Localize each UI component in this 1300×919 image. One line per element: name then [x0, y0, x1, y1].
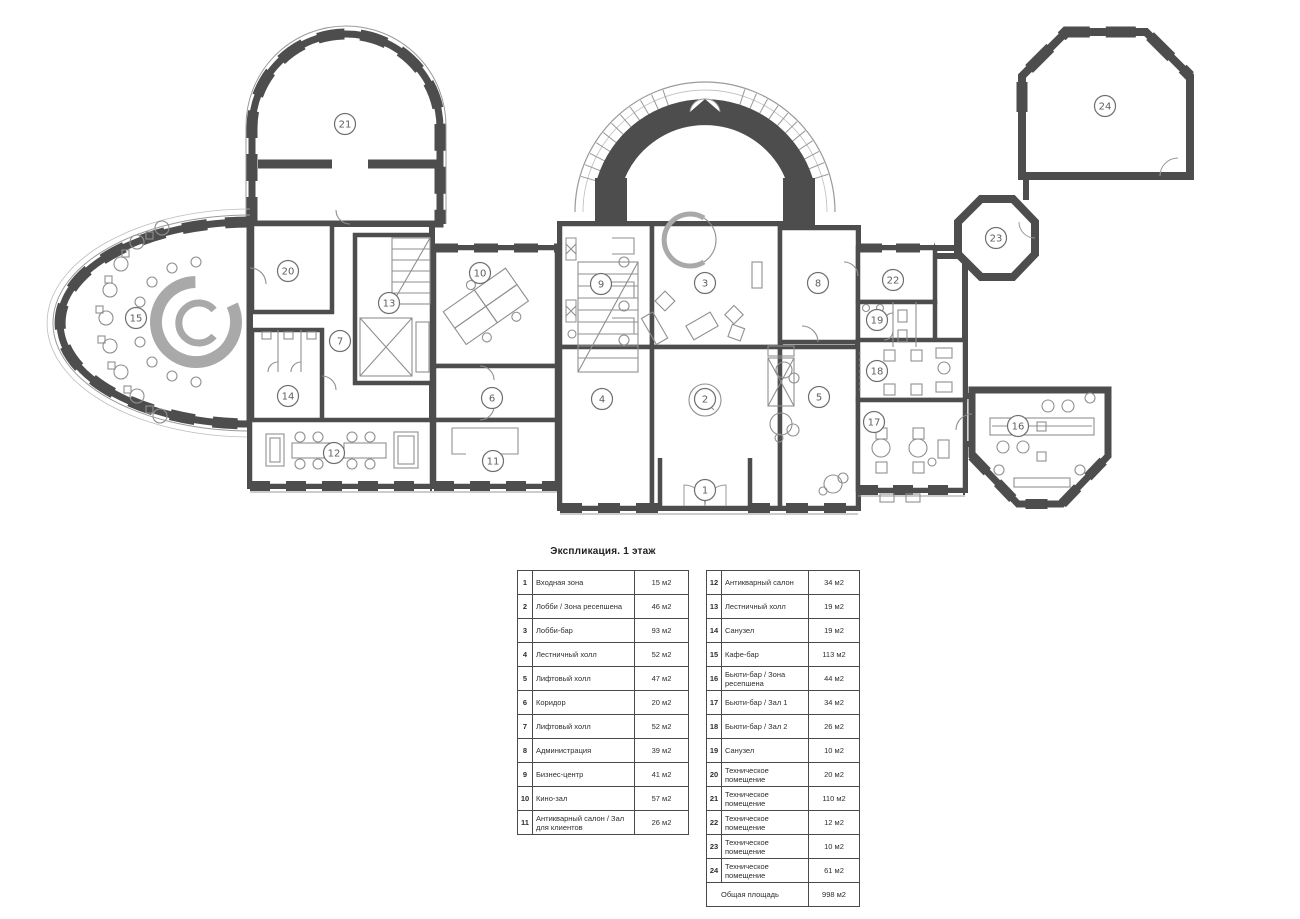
legend-cell-num: 5: [518, 667, 533, 691]
room-marker-number: 1: [702, 485, 708, 496]
legend-cell-num: 7: [518, 715, 533, 739]
legend-cell-num: 2: [518, 595, 533, 619]
legend-cell-num: 16: [707, 667, 722, 691]
legend-cell-area: 26 м2: [809, 715, 860, 739]
legend-cell-name: Санузел: [722, 619, 809, 643]
room-marker-number: 24: [1099, 101, 1112, 112]
legend-row: 3Лобби-бар93 м2: [518, 619, 689, 643]
legend-cell-num: 8: [518, 739, 533, 763]
floor-plan-drawing: 123456789101112131415161718192021222324: [0, 0, 1300, 545]
legend-cell-name: Лифтовый холл: [533, 667, 635, 691]
legend-cell-area: 110 м2: [809, 787, 860, 811]
room-marker-number: 23: [990, 233, 1003, 244]
legend-row: 21Техническое помещение110 м2: [707, 787, 860, 811]
room-marker-number: 2: [702, 394, 708, 405]
room-marker-number: 21: [339, 119, 352, 130]
legend-table-right-body: 12Антикварный салон34 м213Лестничный хол…: [707, 571, 860, 907]
legend-cell-area: 20 м2: [635, 691, 689, 715]
room-marker-number: 12: [328, 448, 341, 459]
room-marker-number: 19: [871, 315, 884, 326]
legend-cell-area: 47 м2: [635, 667, 689, 691]
legend-cell-area: 10 м2: [809, 835, 860, 859]
room-marker-number: 17: [868, 417, 881, 428]
legend-row: 5Лифтовый холл47 м2: [518, 667, 689, 691]
legend-cell-name: Лобби-бар: [533, 619, 635, 643]
room-marker-number: 10: [474, 268, 487, 279]
room-marker-number: 6: [489, 393, 495, 404]
room-marker-number: 16: [1012, 421, 1025, 432]
legend-cell-num: 22: [707, 811, 722, 835]
legend-cell-name: Лестничный холл: [722, 595, 809, 619]
legend-cell-num: 24: [707, 859, 722, 883]
legend-cell-name: Техническое помещение: [722, 835, 809, 859]
legend-row: 14Санузел19 м2: [707, 619, 860, 643]
legend-cell-name: Кино-зал: [533, 787, 635, 811]
legend-cell-area: 19 м2: [809, 595, 860, 619]
room-marker-number: 7: [337, 336, 343, 347]
room-marker-number: 20: [282, 266, 295, 277]
legend-cell-num: 19: [707, 739, 722, 763]
legend-row: 2Лобби / Зона ресепшена46 м2: [518, 595, 689, 619]
legend-cell-name: Антикварный салон: [722, 571, 809, 595]
legend-cell-num: 4: [518, 643, 533, 667]
legend-cell-area: 113 м2: [809, 643, 860, 667]
floor-plan-sheet: 123456789101112131415161718192021222324 …: [0, 0, 1300, 919]
legend-row: 17Бьюти-бар / Зал 134 м2: [707, 691, 860, 715]
legend-row: 1Входная зона15 м2: [518, 571, 689, 595]
legend-row: 23Техническое помещение10 м2: [707, 835, 860, 859]
legend-cell-area: 34 м2: [809, 691, 860, 715]
legend-total-label: Общая площадь: [707, 883, 809, 907]
legend-cell-area: 52 м2: [635, 715, 689, 739]
legend-row: 10Кино-зал57 м2: [518, 787, 689, 811]
legend-row: 12Антикварный салон34 м2: [707, 571, 860, 595]
annex-rooms: [935, 32, 1190, 504]
legend-cell-num: 10: [518, 787, 533, 811]
legend-cell-name: Антикварный салон / Зал для клиентов: [533, 811, 635, 835]
room-marker-number: 9: [598, 279, 604, 290]
room-marker-number: 4: [599, 394, 605, 405]
legend-cell-name: Лестничный холл: [533, 643, 635, 667]
legend-cell-area: 39 м2: [635, 739, 689, 763]
legend-cell-num: 9: [518, 763, 533, 787]
legend-cell-area: 46 м2: [635, 595, 689, 619]
legend-cell-area: 44 м2: [809, 667, 860, 691]
legend-cell-num: 17: [707, 691, 722, 715]
legend-row: 13Лестничный холл19 м2: [707, 595, 860, 619]
legend-cell-area: 15 м2: [635, 571, 689, 595]
room-marker-number: 5: [816, 392, 822, 403]
legend-cell-area: 52 м2: [635, 643, 689, 667]
legend-row: 19Санузел10 м2: [707, 739, 860, 763]
room-marker-number: 8: [815, 278, 821, 289]
legend-row: 4Лестничный холл52 м2: [518, 643, 689, 667]
legend-cell-area: 34 м2: [809, 571, 860, 595]
room-marker-number: 22: [887, 275, 900, 286]
legend-cell-name: Бьюти-бар / Зона ресепшена: [722, 667, 809, 691]
legend-cell-name: Техническое помещение: [722, 763, 809, 787]
room-marker-number: 3: [702, 278, 708, 289]
legend-cell-area: 12 м2: [809, 811, 860, 835]
room-marker-number: 18: [871, 366, 884, 377]
legend-table-right: 12Антикварный салон34 м213Лестничный хол…: [706, 570, 860, 907]
legend-row: 15Кафе-бар113 м2: [707, 643, 860, 667]
legend-cell-name: Лифтовый холл: [533, 715, 635, 739]
legend-cell-name: Лобби / Зона ресепшена: [533, 595, 635, 619]
legend-cell-num: 14: [707, 619, 722, 643]
legend-cell-num: 13: [707, 595, 722, 619]
legend-cell-name: Бизнес-центр: [533, 763, 635, 787]
legend-cell-num: 15: [707, 643, 722, 667]
legend-cell-num: 1: [518, 571, 533, 595]
room-marker-number: 11: [487, 456, 500, 467]
legend-row: 8Администрация39 м2: [518, 739, 689, 763]
legend-cell-name: Техническое помещение: [722, 787, 809, 811]
legend-table-left: 1Входная зона15 м22Лобби / Зона ресепшен…: [517, 570, 689, 835]
legend-row: 16Бьюти-бар / Зона ресепшена44 м2: [707, 667, 860, 691]
legend-cell-name: Бьюти-бар / Зал 2: [722, 715, 809, 739]
legend-total-row: Общая площадь998 м2: [707, 883, 860, 907]
legend-row: 9Бизнес-центр41 м2: [518, 763, 689, 787]
legend-cell-num: 21: [707, 787, 722, 811]
legend-cell-area: 41 м2: [635, 763, 689, 787]
legend-table-left-body: 1Входная зона15 м22Лобби / Зона ресепшен…: [518, 571, 689, 835]
room-marker-number: 15: [130, 313, 143, 324]
portico: [575, 82, 835, 226]
legend-cell-num: 11: [518, 811, 533, 835]
legend-cell-area: 10 м2: [809, 739, 860, 763]
legend-cell-area: 20 м2: [809, 763, 860, 787]
legend-cell-name: Техническое помещение: [722, 859, 809, 883]
legend-total-area: 998 м2: [809, 883, 860, 907]
legend-cell-area: 61 м2: [809, 859, 860, 883]
legend-cell-num: 18: [707, 715, 722, 739]
legend-row: 22Техническое помещение12 м2: [707, 811, 860, 835]
legend-cell-num: 3: [518, 619, 533, 643]
legend-row: 7Лифтовый холл52 м2: [518, 715, 689, 739]
apse-15: [47, 209, 250, 437]
legend-cell-name: Техническое помещение: [722, 811, 809, 835]
legend-cell-num: 12: [707, 571, 722, 595]
room-marker-number: 14: [282, 391, 295, 402]
legend-row: 11Антикварный салон / Зал для клиентов26…: [518, 811, 689, 835]
legend-row: 20Техническое помещение20 м2: [707, 763, 860, 787]
legend-cell-name: Бьюти-бар / Зал 1: [722, 691, 809, 715]
legend-cell-name: Администрация: [533, 739, 635, 763]
legend-cell-num: 20: [707, 763, 722, 787]
legend-cell-area: 57 м2: [635, 787, 689, 811]
legend-row: 24Техническое помещение61 м2: [707, 859, 860, 883]
legend-cell-num: 6: [518, 691, 533, 715]
legend-title: Экспликация. 1 этаж: [517, 546, 689, 557]
legend-row: 18Бьюти-бар / Зал 226 м2: [707, 715, 860, 739]
legend-cell-area: 19 м2: [809, 619, 860, 643]
legend-cell-num: 23: [707, 835, 722, 859]
room-marker-number: 13: [383, 298, 396, 309]
legend-cell-name: Санузел: [722, 739, 809, 763]
legend-cell-area: 26 м2: [635, 811, 689, 835]
legend-cell-name: Входная зона: [533, 571, 635, 595]
legend-cell-area: 93 м2: [635, 619, 689, 643]
legend-row: 6Коридор20 м2: [518, 691, 689, 715]
legend-cell-name: Кафе-бар: [722, 643, 809, 667]
legend-cell-name: Коридор: [533, 691, 635, 715]
